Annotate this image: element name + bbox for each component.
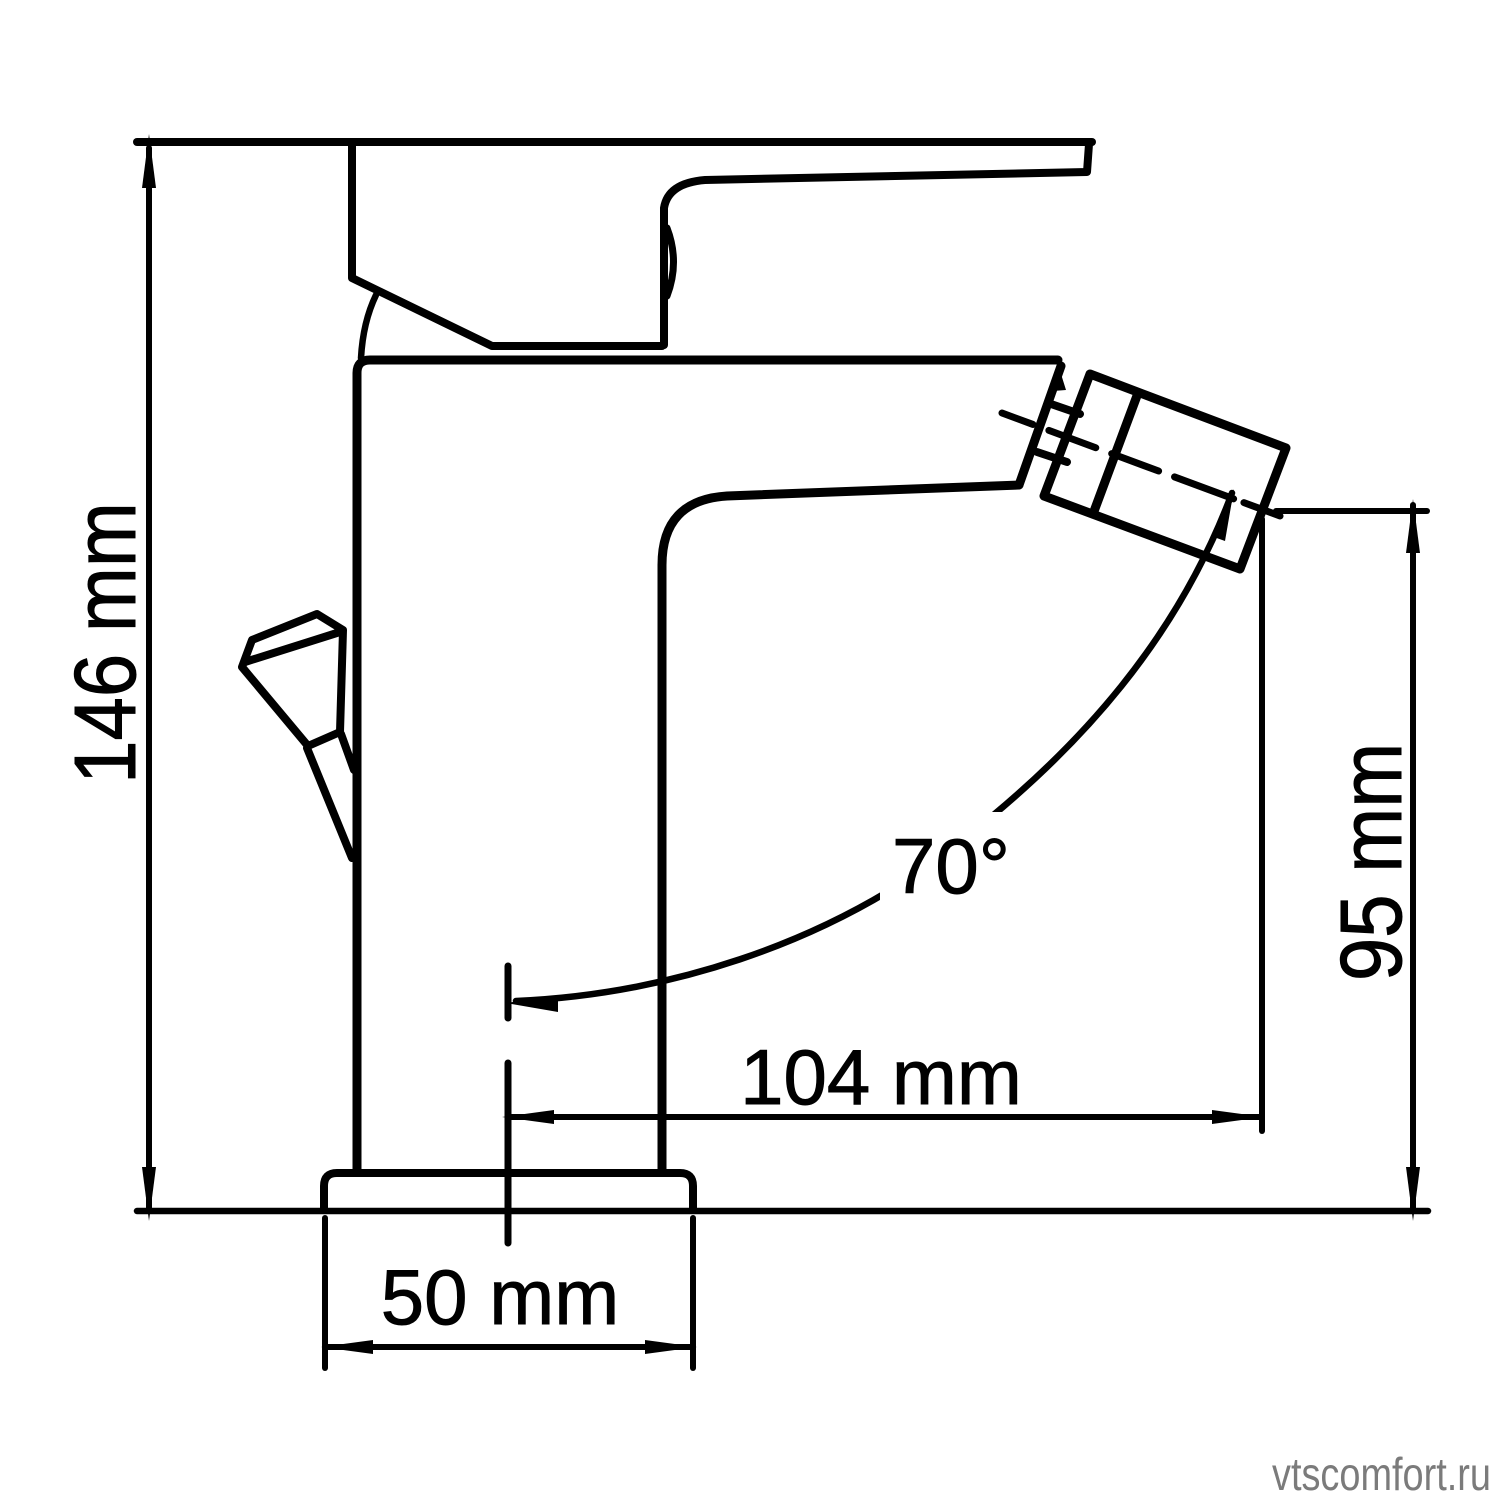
svg-text:95 mm: 95 mm [1322, 743, 1420, 981]
svg-text:70°: 70° [892, 822, 1010, 910]
svg-text:104 mm: 104 mm [740, 1033, 1022, 1121]
svg-text:146 mm: 146 mm [56, 502, 154, 784]
svg-text:vtscomfort.ru: vtscomfort.ru [1272, 1448, 1491, 1500]
svg-text:50 mm: 50 mm [381, 1253, 619, 1341]
